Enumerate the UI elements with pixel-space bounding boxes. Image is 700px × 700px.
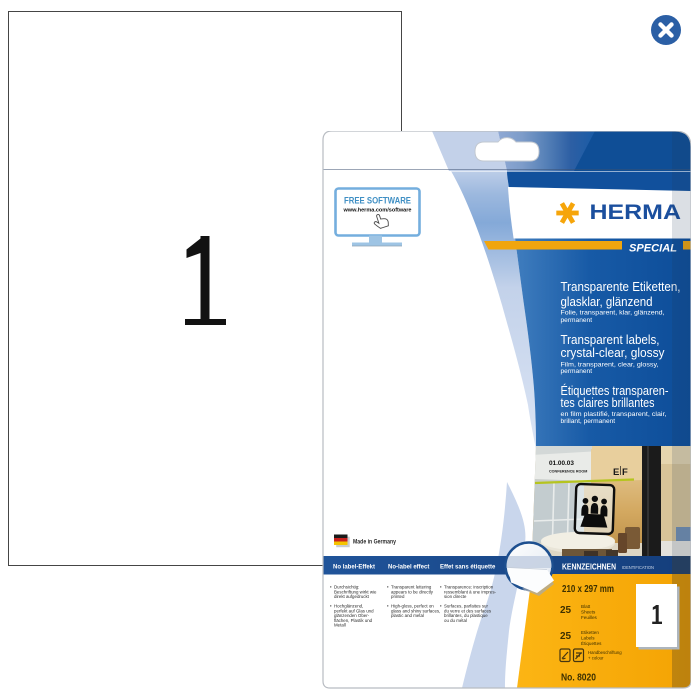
svg-text:Metall: Metall xyxy=(334,623,346,628)
svg-text:No. 8020: No. 8020 xyxy=(561,672,596,684)
svg-text:ou du métal: ou du métal xyxy=(444,618,467,623)
svg-text:direkt aufgedruckt: direkt aufgedruckt xyxy=(334,594,370,599)
svg-text:www.herma.com/software: www.herma.com/software xyxy=(343,208,413,214)
svg-text:KENNZEICHNEN: KENNZEICHNEN xyxy=(562,563,616,572)
svg-text:permanent: permanent xyxy=(561,368,593,375)
svg-text:permanent: permanent xyxy=(561,317,593,324)
svg-text:glasklar, glänzend: glasklar, glänzend xyxy=(561,294,653,309)
svg-text:plastic and metal: plastic and metal xyxy=(391,613,424,618)
svg-text:Made in Germany: Made in Germany xyxy=(353,539,396,546)
svg-text:Feuilles: Feuilles xyxy=(581,615,598,620)
svg-text:25: 25 xyxy=(560,605,572,616)
svg-text:HERMA: HERMA xyxy=(590,201,682,224)
svg-text:Étiquettes: Étiquettes xyxy=(581,640,602,646)
svg-text:No-label effect: No-label effect xyxy=(388,565,429,571)
svg-text:IDENTIFICATION: IDENTIFICATION xyxy=(622,565,654,570)
svg-text:Labels: Labels xyxy=(581,636,595,641)
svg-text:F: F xyxy=(622,467,628,478)
svg-text:SPECIAL: SPECIAL xyxy=(629,243,677,255)
svg-text:printed: printed xyxy=(391,594,405,599)
svg-text:210 x 297 mm: 210 x 297 mm xyxy=(562,583,614,595)
svg-text:Blatt: Blatt xyxy=(581,604,591,609)
svg-text:25: 25 xyxy=(560,631,572,642)
svg-text:Etiketten: Etiketten xyxy=(581,630,599,635)
svg-text:No label-Effekt: No label-Effekt xyxy=(333,565,375,571)
svg-text:crystal-clear, glossy: crystal-clear, glossy xyxy=(561,345,665,360)
svg-text:+ colour: + colour xyxy=(588,656,604,661)
svg-text:brillant, permanent: brillant, permanent xyxy=(561,418,616,425)
svg-text:Handbeschriftung: Handbeschriftung xyxy=(588,650,622,655)
svg-text:FREE SOFTWARE: FREE SOFTWARE xyxy=(344,195,411,206)
svg-text:CONFERENCE ROOM: CONFERENCE ROOM xyxy=(549,470,587,474)
svg-text:E: E xyxy=(613,467,619,478)
svg-text:Transparente Etiketten,: Transparente Etiketten, xyxy=(561,279,681,294)
svg-text:Sheets: Sheets xyxy=(581,610,596,615)
svg-text:en film plastifié, transparent: en film plastifié, transparent, clair, xyxy=(561,411,667,418)
svg-text:Effet sans étiquette: Effet sans étiquette xyxy=(440,565,496,571)
svg-text:Folie, transparent, klar, glän: Folie, transparent, klar, glänzend, xyxy=(561,310,665,317)
svg-text:tes claires brillantes: tes claires brillantes xyxy=(561,395,655,410)
svg-text:sion directe: sion directe xyxy=(444,594,467,599)
svg-text:01.00.03: 01.00.03 xyxy=(549,460,574,467)
